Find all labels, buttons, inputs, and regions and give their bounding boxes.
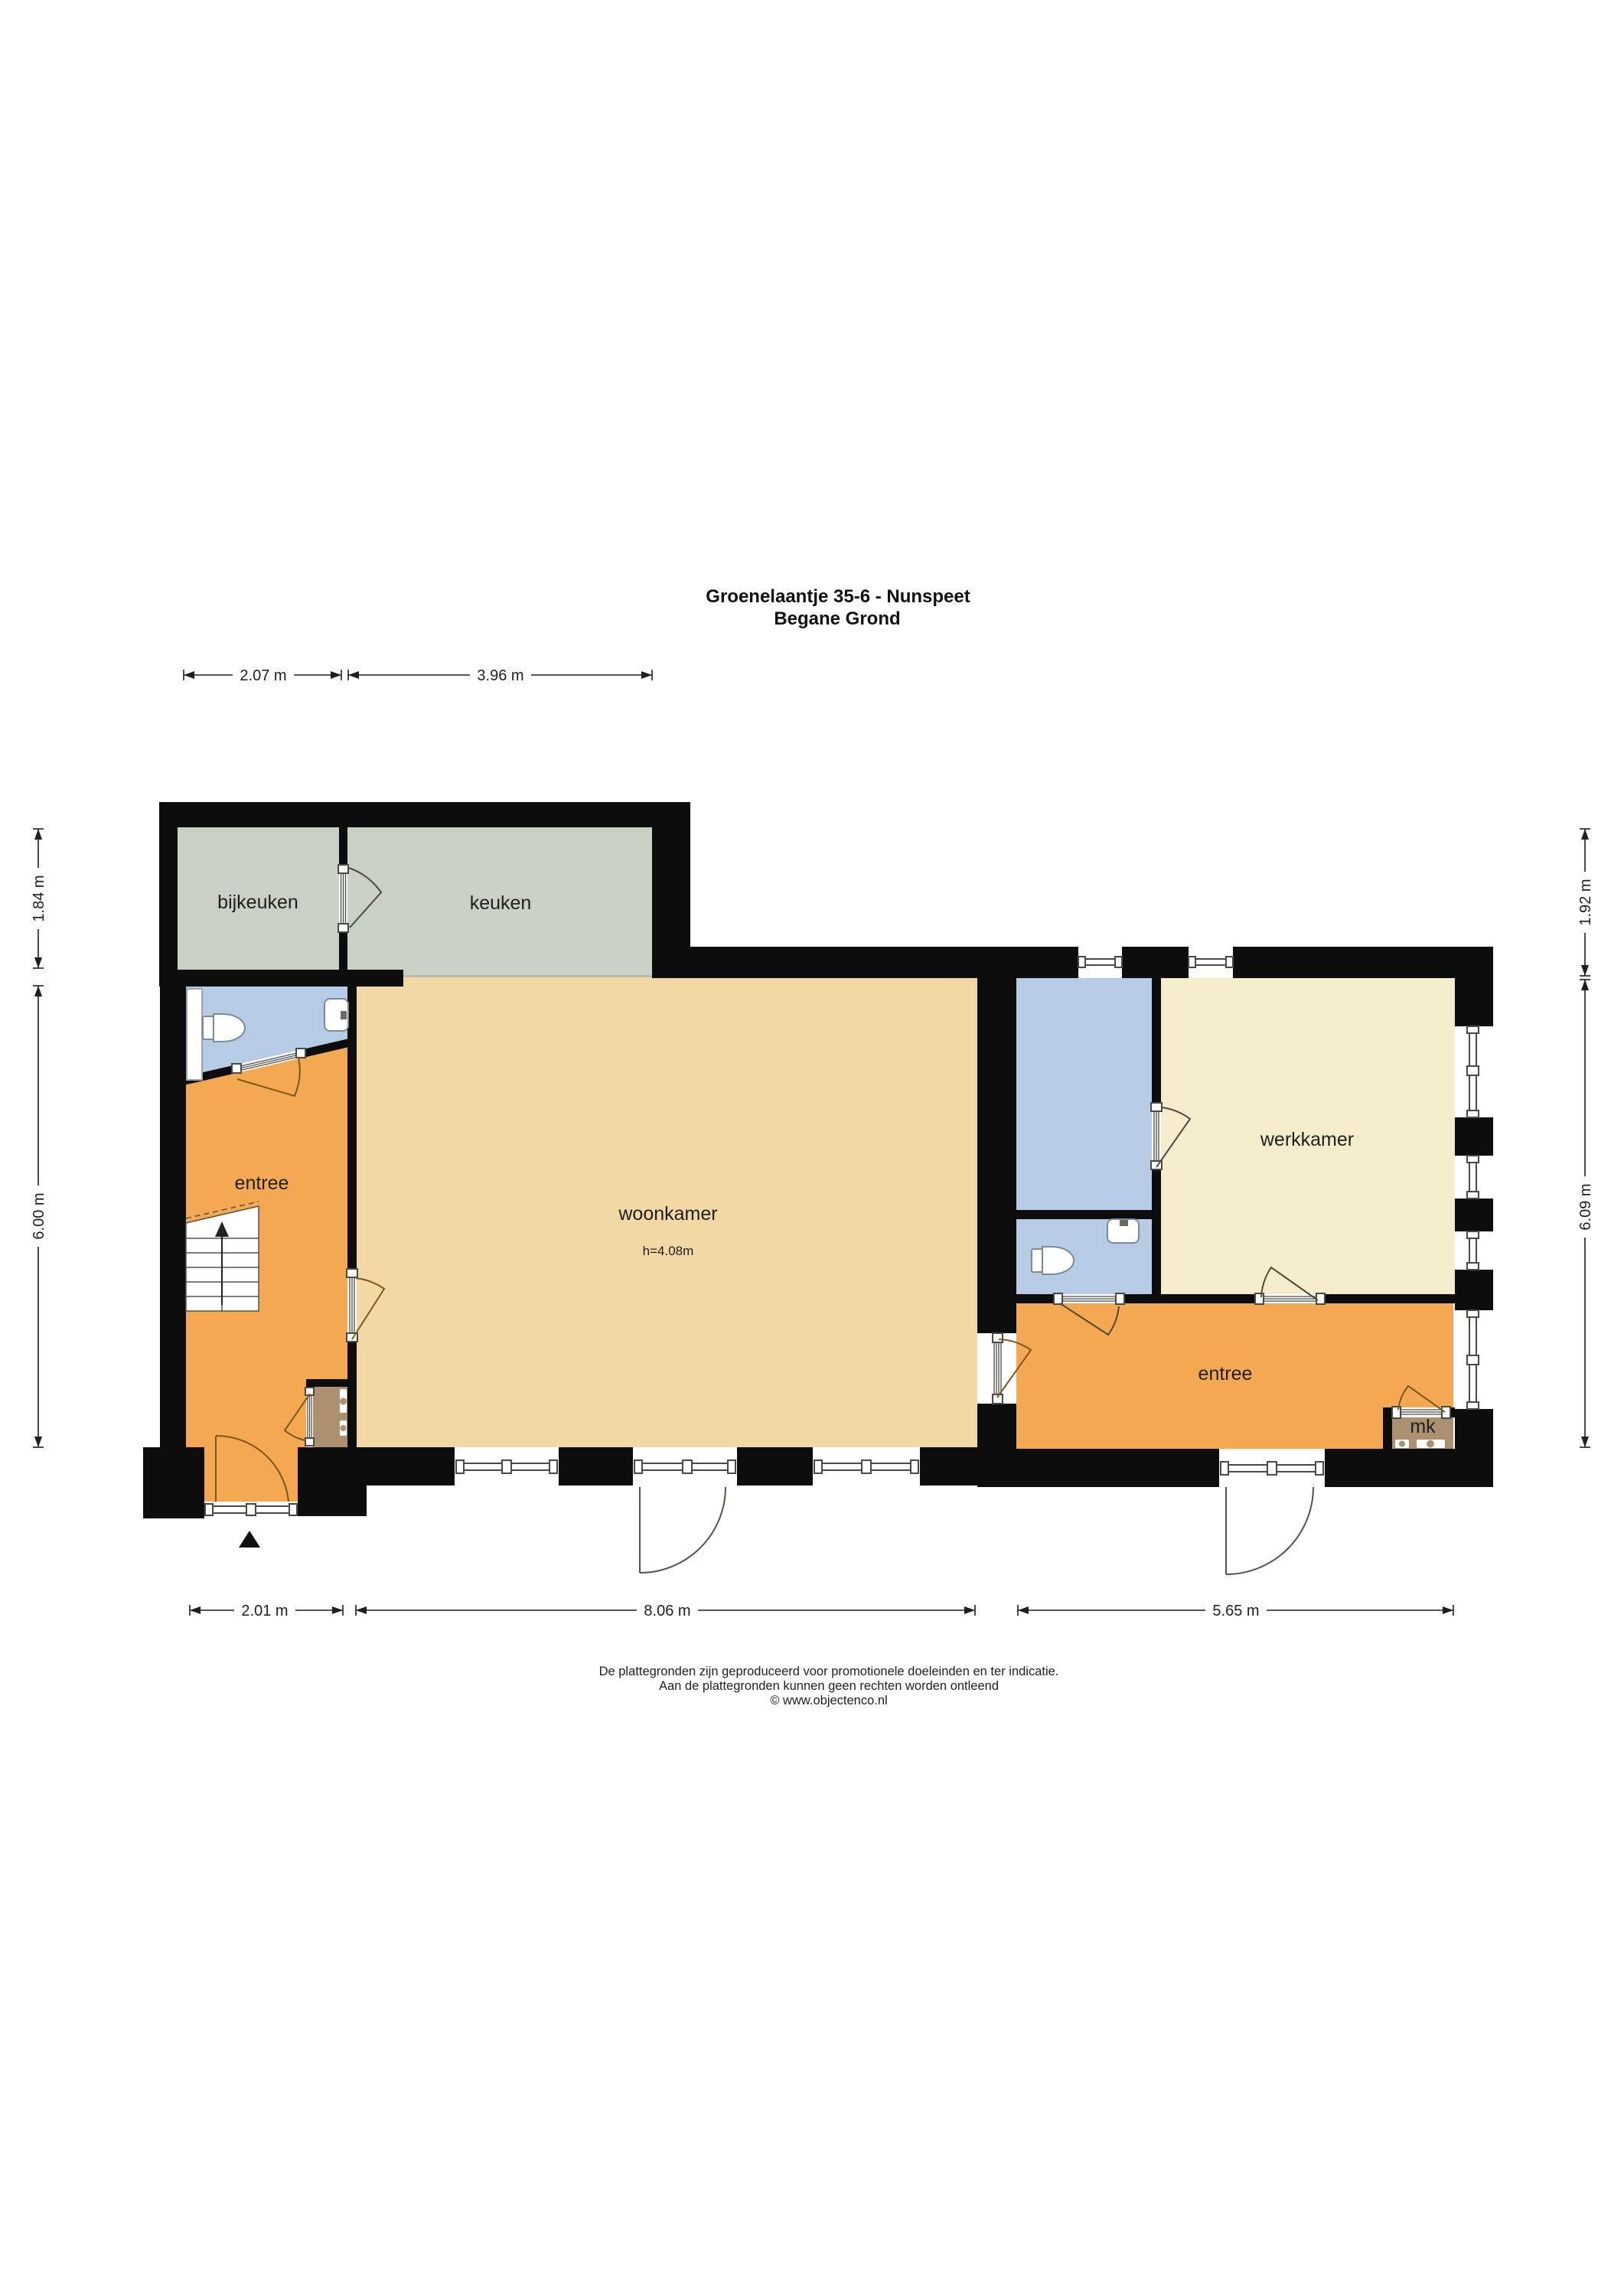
svg-text:6.09 m: 6.09 m (1577, 1183, 1594, 1230)
svg-text:© www.objectenco.nl: © www.objectenco.nl (770, 1694, 887, 1707)
svg-text:6.00 m: 6.00 m (31, 1192, 47, 1239)
svg-text:entree: entree (1198, 1363, 1253, 1384)
svg-text:Aan de plattegronden kunnen ge: Aan de plattegronden kunnen geen rechten… (659, 1679, 999, 1693)
svg-text:Begane Grond: Begane Grond (774, 608, 900, 629)
svg-text:1.84 m: 1.84 m (31, 875, 47, 921)
svg-text:2.01 m: 2.01 m (241, 1603, 288, 1619)
svg-text:1.92 m: 1.92 m (1577, 879, 1594, 925)
svg-text:8.06 m: 8.06 m (644, 1603, 690, 1619)
svg-text:h=4.08m: h=4.08m (643, 1244, 694, 1258)
svg-text:entree: entree (235, 1172, 289, 1194)
svg-text:5.65 m: 5.65 m (1212, 1603, 1259, 1619)
svg-text:3.96 m: 3.96 m (477, 667, 523, 684)
svg-text:Groenelaantje 35-6 - Nunspeet: Groenelaantje 35-6 - Nunspeet (706, 586, 970, 607)
svg-text:2.07 m: 2.07 m (240, 667, 286, 684)
svg-text:woonkamer: woonkamer (618, 1203, 717, 1225)
svg-text:bijkeuken: bijkeuken (217, 892, 298, 913)
svg-text:mk: mk (1410, 1416, 1436, 1437)
svg-text:De plattegronden zijn geproduc: De plattegronden zijn geproduceerd voor … (599, 1665, 1059, 1678)
svg-text:keuken: keuken (470, 892, 532, 914)
svg-text:werkkamer: werkkamer (1260, 1129, 1354, 1150)
